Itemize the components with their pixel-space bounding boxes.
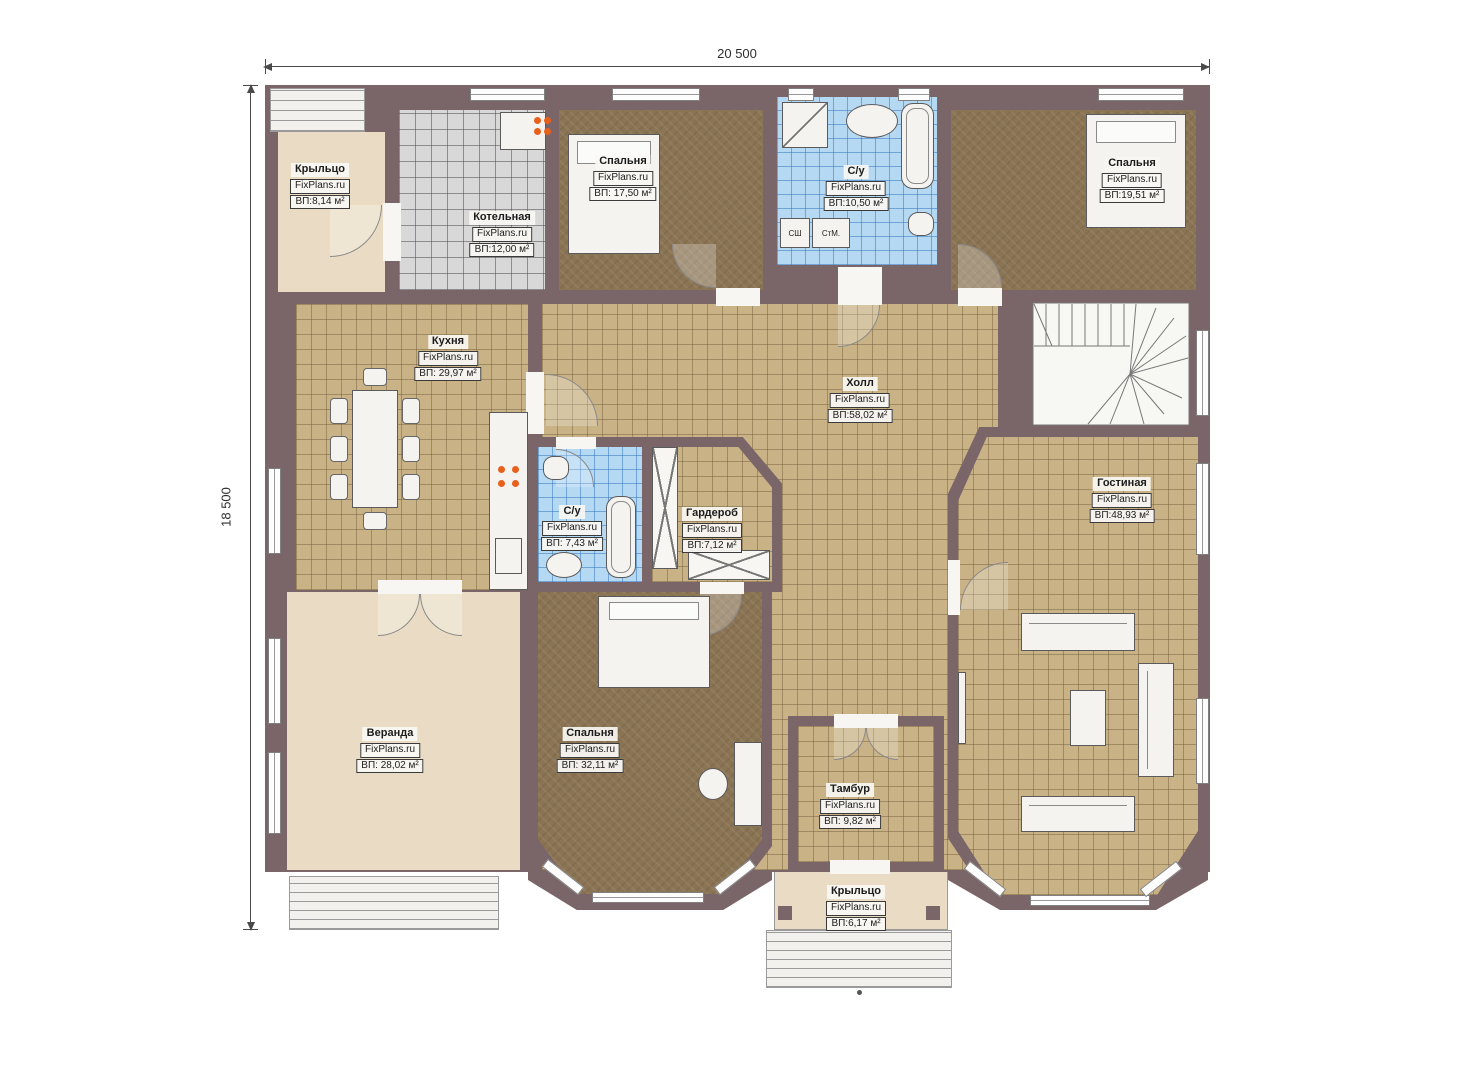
room-label-veranda: Веранда FixPlans.ru ВП: 28,02 м²: [356, 722, 423, 773]
desk-chair: [698, 768, 728, 800]
coffee-table: [1070, 690, 1106, 746]
door-opening: [700, 582, 744, 594]
bathtub: [901, 103, 934, 189]
room-label-bedroom1: Спальня FixPlans.ru ВП: 17,50 м²: [589, 150, 656, 201]
porch-steps-bottom: [766, 930, 952, 988]
window: [1196, 698, 1209, 784]
tv-unit: [958, 672, 966, 744]
window: [1196, 463, 1209, 555]
room-label-porch-bottom: Крыльцо FixPlans.ru ВП:6,17 м²: [826, 880, 886, 931]
steps-center-dot: [857, 990, 862, 995]
room-label-kitchen: Кухня FixPlans.ru ВП: 29,97 м²: [414, 330, 481, 381]
shower: [782, 102, 828, 148]
bed: [598, 596, 710, 688]
room-label-bathroom2: С/у FixPlans.ru ВП: 7,43 м²: [541, 500, 603, 551]
door-opening: [526, 372, 544, 434]
dimension-height-label: 18 500: [219, 487, 234, 527]
window: [788, 88, 814, 101]
window-bay: [592, 892, 704, 903]
room-label-bedroom2: Спальня FixPlans.ru ВП:19,51 м²: [1100, 152, 1165, 203]
window-bay: [1030, 895, 1150, 906]
sofa: [1021, 613, 1135, 651]
toilet: [543, 456, 569, 480]
porch-pillar-left: [778, 906, 792, 920]
porch-pillar-right: [926, 906, 940, 920]
washing-machine: СтМ.: [812, 218, 850, 248]
staircase: [1032, 302, 1190, 426]
sofa: [1138, 663, 1174, 777]
wardrobe-unit: [652, 447, 678, 569]
room-label-porch-top: Крыльцо FixPlans.ru ВП:8,14 м²: [290, 158, 350, 209]
window: [1098, 88, 1184, 101]
entry-steps-top-left: [270, 88, 365, 132]
door-opening: [383, 203, 401, 261]
veranda-steps: [289, 876, 499, 930]
door-opening: [838, 267, 882, 305]
desk: [734, 742, 762, 826]
window: [612, 88, 700, 101]
sofa: [1021, 796, 1135, 832]
dimension-height-line: [250, 85, 251, 930]
window: [1196, 330, 1209, 416]
door-opening: [556, 437, 596, 449]
room-label-hall: Холл FixPlans.ru ВП:58,02 м²: [828, 372, 893, 423]
kitchen-sink: [495, 538, 522, 574]
dryer-label: СШ: [788, 229, 801, 238]
sink: [546, 552, 582, 578]
window: [470, 88, 545, 101]
floor-plan: 20 500 18 500: [0, 0, 1474, 1080]
room-label-living: Гостиная FixPlans.ru ВП:48,93 м²: [1090, 472, 1155, 523]
wardrobe-unit: [688, 550, 770, 580]
room-label-bedroom3: Спальня FixPlans.ru ВП: 32,11 м²: [557, 722, 624, 773]
door-opening: [378, 580, 462, 594]
window: [268, 752, 281, 834]
window: [268, 468, 281, 554]
room-label-tambour: Тамбур FixPlans.ru ВП: 9,82 м²: [819, 778, 881, 829]
dryer-cabinet: СШ: [780, 218, 810, 248]
room-label-wardrobe: Гардероб FixPlans.ru ВП:7,12 м²: [682, 502, 742, 553]
dining-table: [352, 390, 398, 508]
room-label-boiler: Котельная FixPlans.ru ВП:12,00 м²: [469, 206, 535, 257]
toilet: [908, 212, 934, 236]
door-opening: [948, 560, 960, 615]
bathtub: [606, 496, 636, 578]
dimension-width-line: [265, 66, 1210, 67]
door-opening: [830, 860, 890, 874]
sink: [846, 104, 898, 138]
dimension-width-label: 20 500: [717, 46, 757, 61]
door-opening: [958, 288, 1002, 306]
room-label-bathroom1: С/у FixPlans.ru ВП:10,50 м²: [824, 160, 889, 211]
window: [898, 88, 930, 101]
door-opening: [716, 288, 760, 306]
window: [268, 638, 281, 724]
washer-label: СтМ.: [822, 229, 840, 238]
door-opening: [834, 714, 898, 728]
